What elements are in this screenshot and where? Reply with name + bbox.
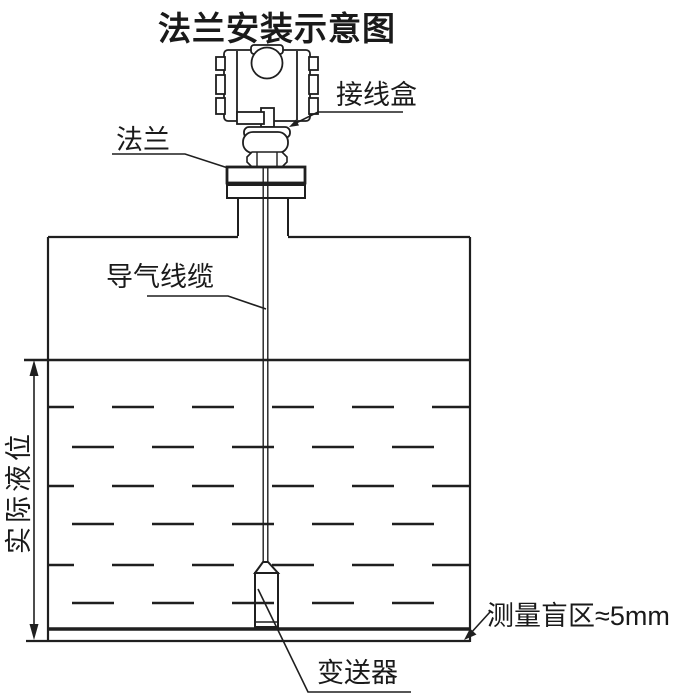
body-rib-left-2 [216, 75, 225, 94]
arrow-down-icon [30, 624, 39, 640]
tank-drawing [24, 237, 470, 642]
body-rib-right-1 [309, 57, 318, 70]
probe-body [255, 573, 278, 627]
hex-nut [247, 152, 287, 167]
body-rib-right-2 [309, 75, 318, 94]
air-cable-leader [147, 296, 266, 309]
transmitter-head-icon [216, 45, 318, 167]
flange-drawing [227, 167, 305, 236]
diagram-title: 法兰安装示意图 [127, 2, 427, 50]
body-rib-right-3 [309, 98, 318, 114]
display-cover-circle [252, 48, 283, 79]
blind-zone-label: 测量盲区≈5mm [487, 602, 670, 632]
body-rib-left-1 [216, 57, 225, 70]
body-rib-left-3 [216, 98, 225, 114]
junction-box-label: 接线盒 [336, 81, 417, 111]
flange-leader [112, 154, 228, 168]
flange-installation-diagram: 法兰安装示意图 接线盒 法兰 导气线缆 实际液位 变送器 测量盲区≈5mm [0, 0, 700, 700]
air-guide-cable-line [263, 167, 268, 562]
flange-plate [227, 167, 305, 183]
companion-flange-plate [227, 185, 305, 198]
arrow-up-icon [30, 360, 39, 376]
probe-drawing [255, 562, 278, 627]
air-cable-label: 导气线缆 [106, 263, 214, 293]
conduit-bar [237, 112, 264, 124]
actual-level-label: 实际液位 [5, 417, 35, 567]
probe-taper [255, 562, 278, 573]
transmitter-label: 变送器 [317, 659, 398, 689]
ball-joint [243, 132, 288, 153]
flange-label: 法兰 [116, 126, 170, 156]
